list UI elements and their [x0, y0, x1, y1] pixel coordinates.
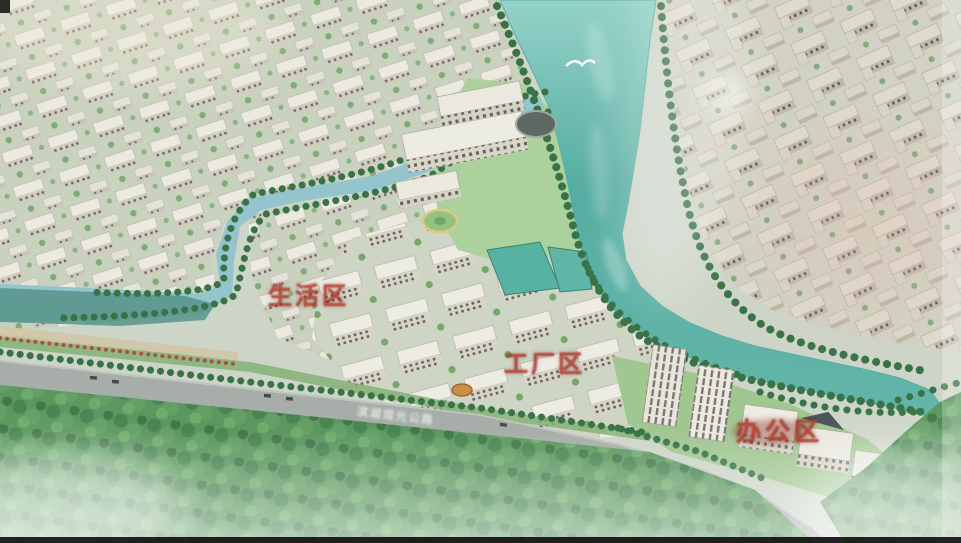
site-plan-photo: 生活区 工厂区 办公区 滨湖观光公路	[0, 0, 961, 543]
site-plan-rendering	[0, 0, 961, 543]
label-living-area: 生活区	[268, 276, 349, 311]
photo-glare-overlays	[0, 0, 961, 543]
photo-corner-dark-square	[0, 0, 10, 13]
label-factory-area: 工厂区	[504, 344, 585, 379]
label-office-area: 办公区	[736, 412, 823, 448]
photo-edge-bottom-dark-strip	[0, 537, 961, 543]
